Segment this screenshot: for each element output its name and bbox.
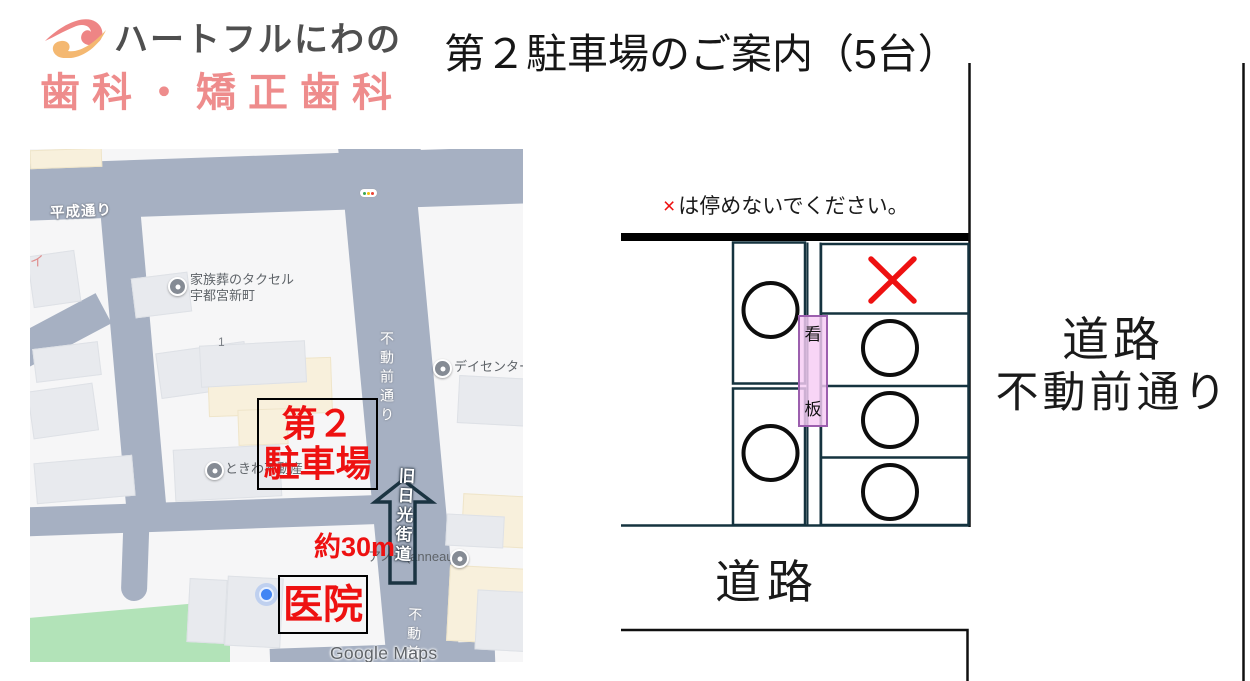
poi-daycenter: デイセンター: [454, 359, 523, 375]
road-stub: [121, 525, 150, 602]
right-stall-block: [821, 244, 969, 525]
building: [30, 383, 99, 440]
logo-clinic-name: ハートフルにわの: [114, 12, 402, 61]
open-spot-circle: [863, 465, 917, 519]
wave-swirl-icon: [44, 10, 108, 58]
logo-clinic-type: 歯科・矯正歯科: [40, 60, 404, 118]
clinic-label: 医院: [283, 583, 363, 627]
signboard: 看 板: [798, 315, 828, 427]
road-label-right-line1: 道路: [975, 312, 1250, 368]
building: [32, 341, 102, 383]
clinic-callout: 医院: [278, 575, 368, 634]
open-spot-circle: [744, 426, 798, 480]
road-label-bottom: 道路: [592, 546, 942, 612]
google-map[interactable]: 1 イ 家族葬のタクセル 宇都宮新町 デイセンター ときわ不動産 アノー(ann…: [30, 149, 523, 662]
parking-2-callout: 第２ 駐車場: [257, 398, 378, 490]
poi-pin-icon[interactable]: [433, 359, 452, 378]
block-number: 1: [218, 335, 225, 349]
poi-pin-icon[interactable]: [168, 277, 187, 296]
building: [30, 149, 102, 169]
road-label-right: 道路 不動前通り: [975, 312, 1250, 418]
poi-takuseru-line2: 宇都宮新町: [190, 288, 294, 304]
distance-label: 約30m: [314, 525, 395, 564]
building-clinic: [224, 576, 284, 649]
signboard-char-bottom: 板: [805, 395, 822, 420]
parking-2-line1: 第２: [281, 404, 353, 444]
building: [33, 455, 135, 504]
signboard-char-top: 看: [805, 320, 822, 345]
building: [457, 375, 523, 427]
open-spot-circle: [863, 393, 917, 447]
poi-pin-icon[interactable]: [450, 549, 469, 568]
building: [445, 514, 505, 549]
location-dot-icon: [259, 587, 274, 602]
lower-block-corner: [621, 630, 968, 681]
building: [186, 578, 227, 644]
road-label-right-line2: 不動前通り: [975, 368, 1250, 418]
map-edge-text: イ: [30, 251, 44, 271]
open-spot-circle: [744, 283, 798, 337]
road-label-fudomae: 不動前通り: [377, 331, 397, 426]
building: [199, 340, 307, 387]
clinic-logo: ハートフルにわの 歯科・矯正歯科: [0, 0, 440, 120]
poi-pin-icon[interactable]: [205, 461, 224, 480]
building: [474, 589, 523, 652]
traffic-light-icon: [360, 189, 377, 197]
street-edge-bar: [621, 233, 969, 241]
google-maps-watermark: Google Maps: [330, 643, 437, 662]
open-spot-circle: [863, 321, 917, 375]
road-label-heisei: 平成通り: [49, 198, 112, 222]
poi-takuseru: 家族葬のタクセル: [190, 272, 294, 288]
parking-2-line2: 駐車場: [263, 444, 371, 484]
